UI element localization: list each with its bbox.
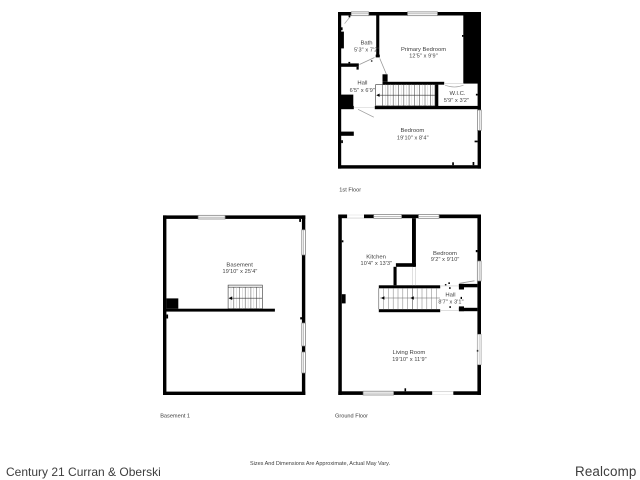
svg-text:W.I.C.: W.I.C. [449, 91, 465, 97]
svg-text:Sizes And Dimensions Are Appro: Sizes And Dimensions Are Approximate, Ac… [250, 461, 391, 467]
svg-text:Realcomp: Realcomp [575, 464, 636, 479]
svg-text:Basement: Basement [226, 263, 253, 269]
svg-text:Hall: Hall [445, 293, 455, 299]
svg-text:Bedroom: Bedroom [400, 128, 424, 134]
svg-text:12'5" x 9'9": 12'5" x 9'9" [409, 53, 438, 59]
svg-text:1st Floor: 1st Floor [339, 188, 361, 194]
svg-text:19'10" x 11'9": 19'10" x 11'9" [392, 357, 427, 363]
svg-text:19'10" x 25'4": 19'10" x 25'4" [223, 269, 258, 275]
svg-text:Kitchen: Kitchen [366, 255, 386, 261]
svg-text:8'7" x 3'1": 8'7" x 3'1" [438, 300, 463, 306]
svg-text:Primary Bedroom: Primary Bedroom [401, 47, 446, 53]
svg-text:19'10" x 8'4": 19'10" x 8'4" [397, 135, 429, 141]
svg-text:5'3" x 7'2": 5'3" x 7'2" [354, 48, 379, 54]
svg-text:9'2" x 9'10": 9'2" x 9'10" [431, 257, 460, 263]
svg-text:Century 21 Curran & Oberski: Century 21 Curran & Oberski [6, 465, 161, 479]
svg-text:Hall: Hall [357, 80, 367, 86]
svg-text:5'9" x 3'2": 5'9" x 3'2" [444, 98, 469, 104]
svg-text:10'4" x 13'3": 10'4" x 13'3" [361, 261, 393, 267]
svg-text:Living Room: Living Room [393, 350, 426, 356]
svg-text:6'5" x 6'9": 6'5" x 6'9" [350, 88, 375, 94]
svg-text:Bath: Bath [360, 41, 372, 47]
svg-text:Bedroom: Bedroom [433, 251, 457, 257]
svg-text:Basement 1: Basement 1 [160, 414, 190, 420]
svg-text:Ground Floor: Ground Floor [335, 414, 368, 420]
